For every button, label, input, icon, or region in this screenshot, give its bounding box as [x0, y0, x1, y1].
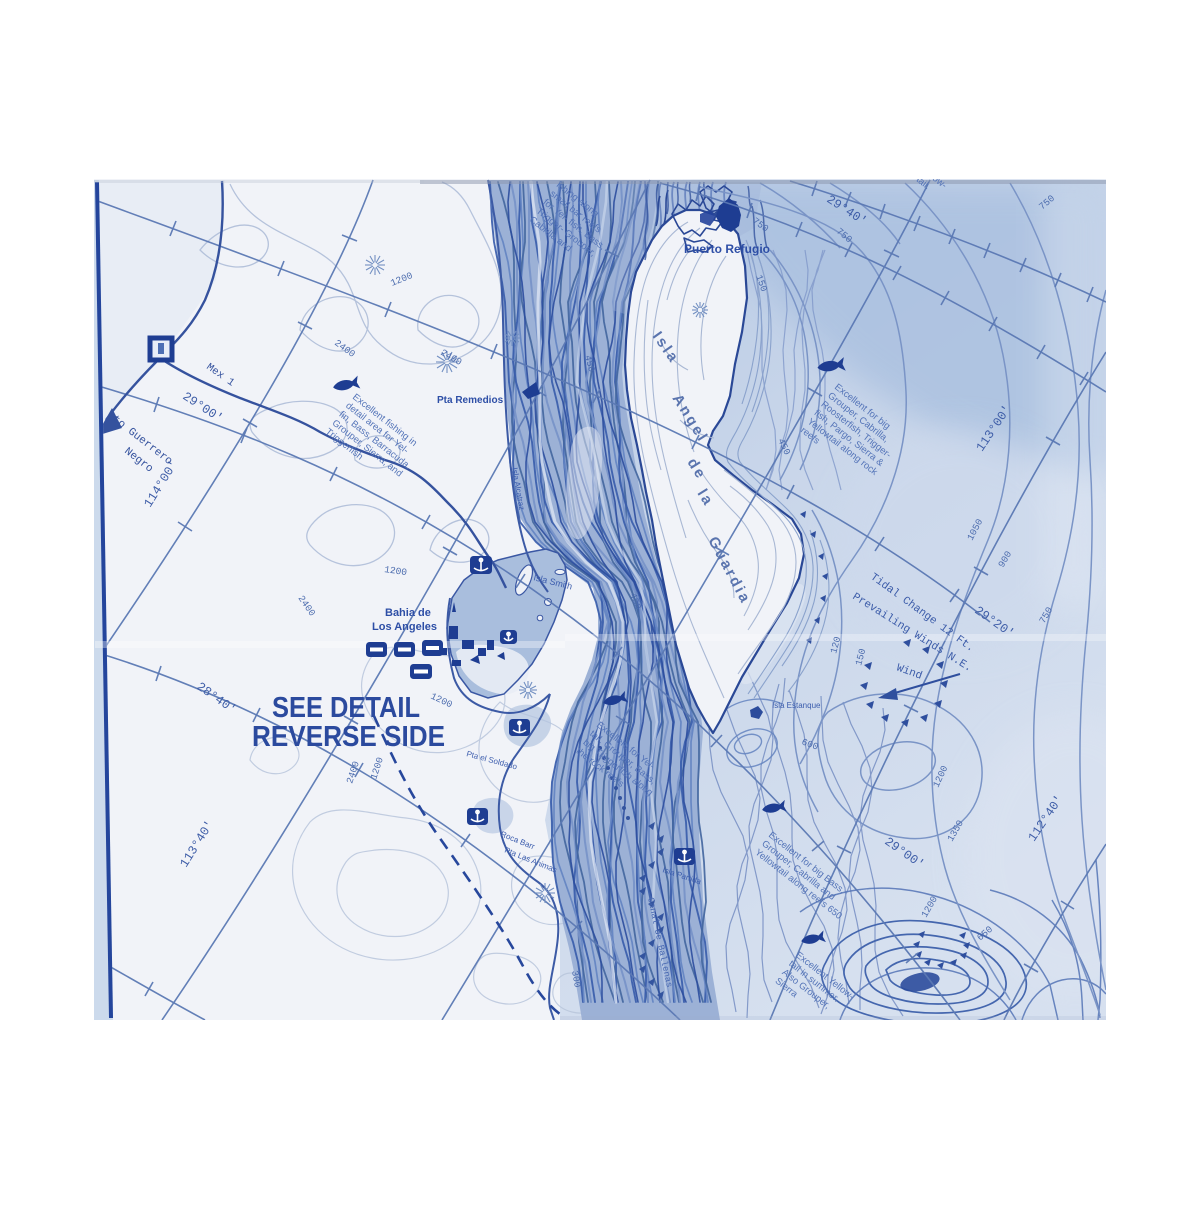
svg-text:Pta Remedios: Pta Remedios: [437, 395, 504, 406]
svg-text:SEE DETAIL: SEE DETAIL: [272, 692, 420, 724]
svg-text:Bahia de: Bahia de: [385, 607, 431, 619]
svg-text:Puerto Refugio: Puerto Refugio: [684, 242, 770, 256]
svg-text:Los Angeles: Los Angeles: [372, 621, 437, 633]
svg-text:REVERSE SIDE: REVERSE SIDE: [252, 721, 445, 753]
svg-text:Isla Estanque: Isla Estanque: [772, 701, 821, 710]
